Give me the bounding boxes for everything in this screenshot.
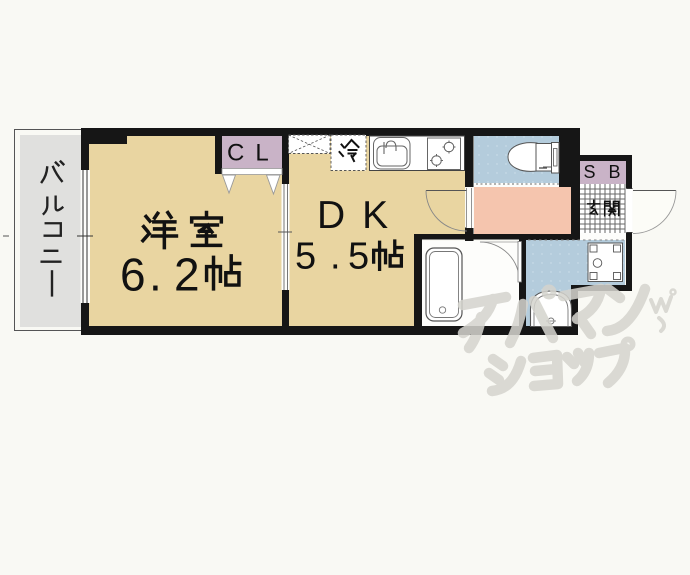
svg-text:CL: CL <box>227 140 280 167</box>
svg-text:2: 2 <box>174 249 200 301</box>
svg-text:.: . <box>330 236 341 278</box>
svg-text:DK: DK <box>317 194 405 237</box>
svg-text:SB: SB <box>584 162 634 182</box>
svg-text:5: 5 <box>348 236 369 278</box>
svg-text:6: 6 <box>120 249 146 301</box>
svg-text:.: . <box>149 249 162 301</box>
svg-text:5: 5 <box>295 236 316 278</box>
